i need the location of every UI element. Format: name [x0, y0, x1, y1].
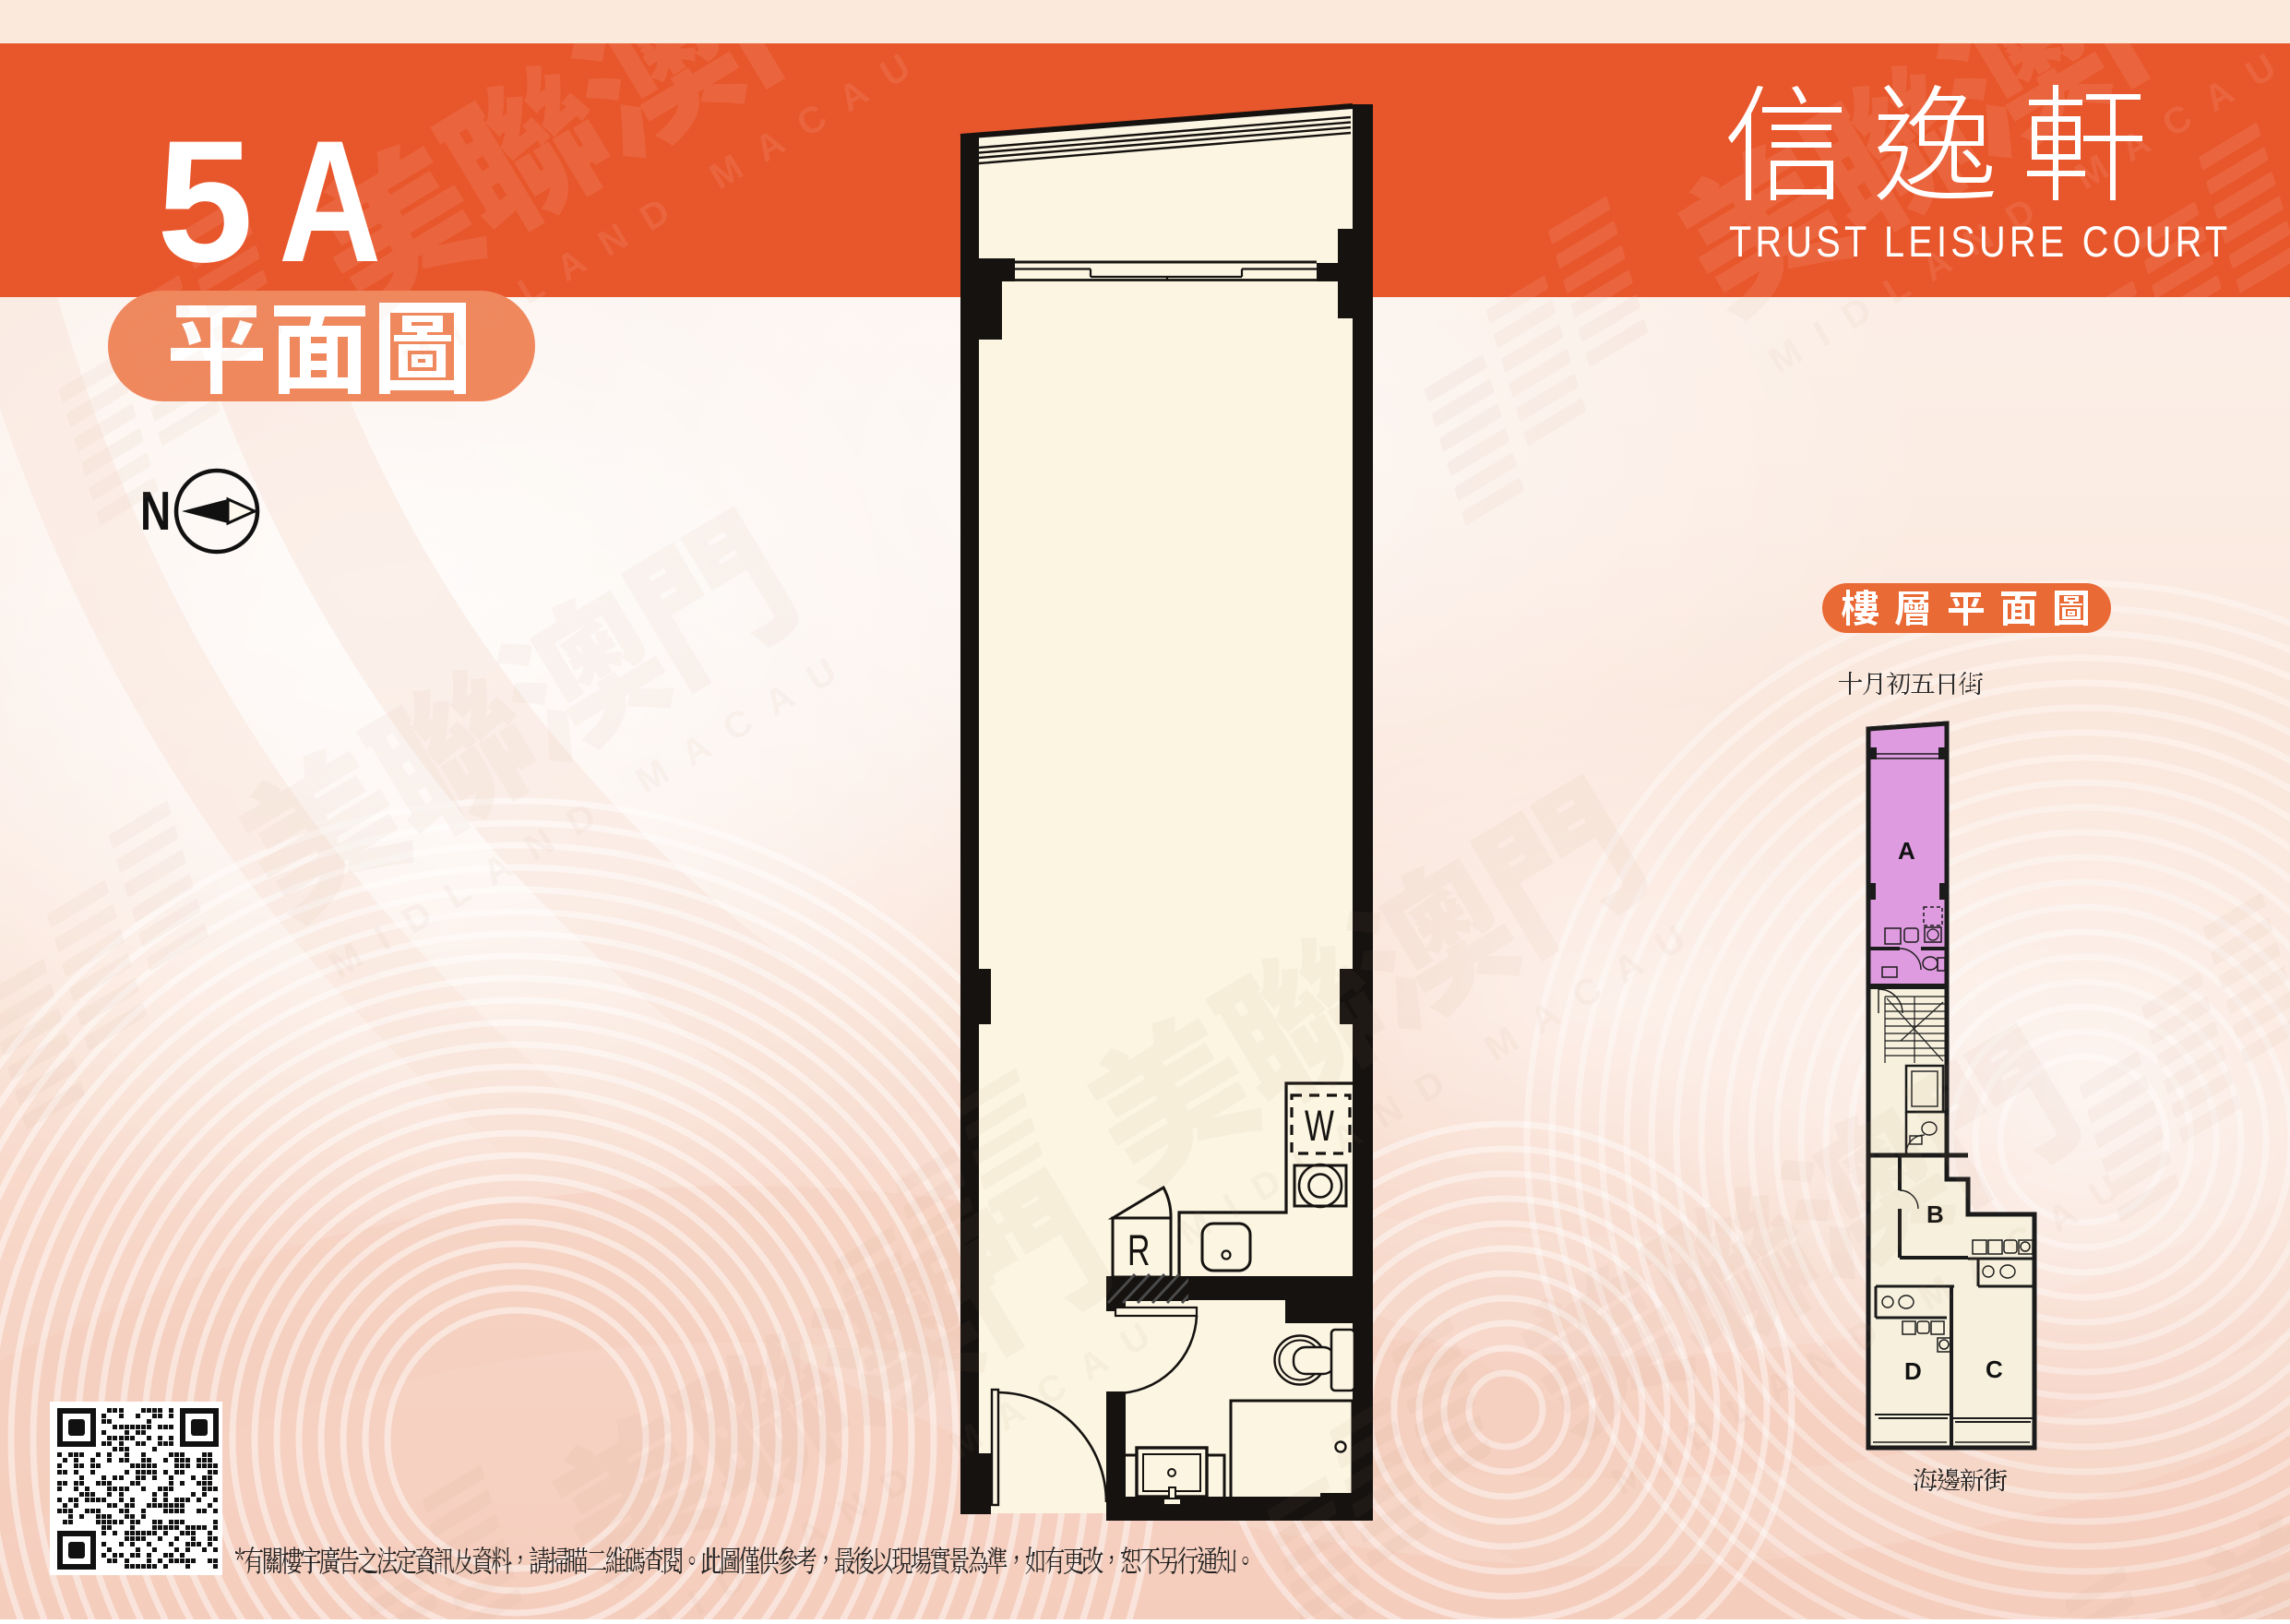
- svg-text:TRUST LEISURE COURT: TRUST LEISURE COURT: [1729, 219, 2231, 267]
- svg-text:D: D: [1904, 1357, 1922, 1385]
- svg-text:R: R: [1127, 1226, 1150, 1275]
- svg-text:5: 5: [157, 104, 254, 298]
- svg-text:A: A: [1898, 837, 1915, 865]
- svg-text:A: A: [279, 104, 381, 298]
- svg-text:C: C: [1986, 1355, 2003, 1383]
